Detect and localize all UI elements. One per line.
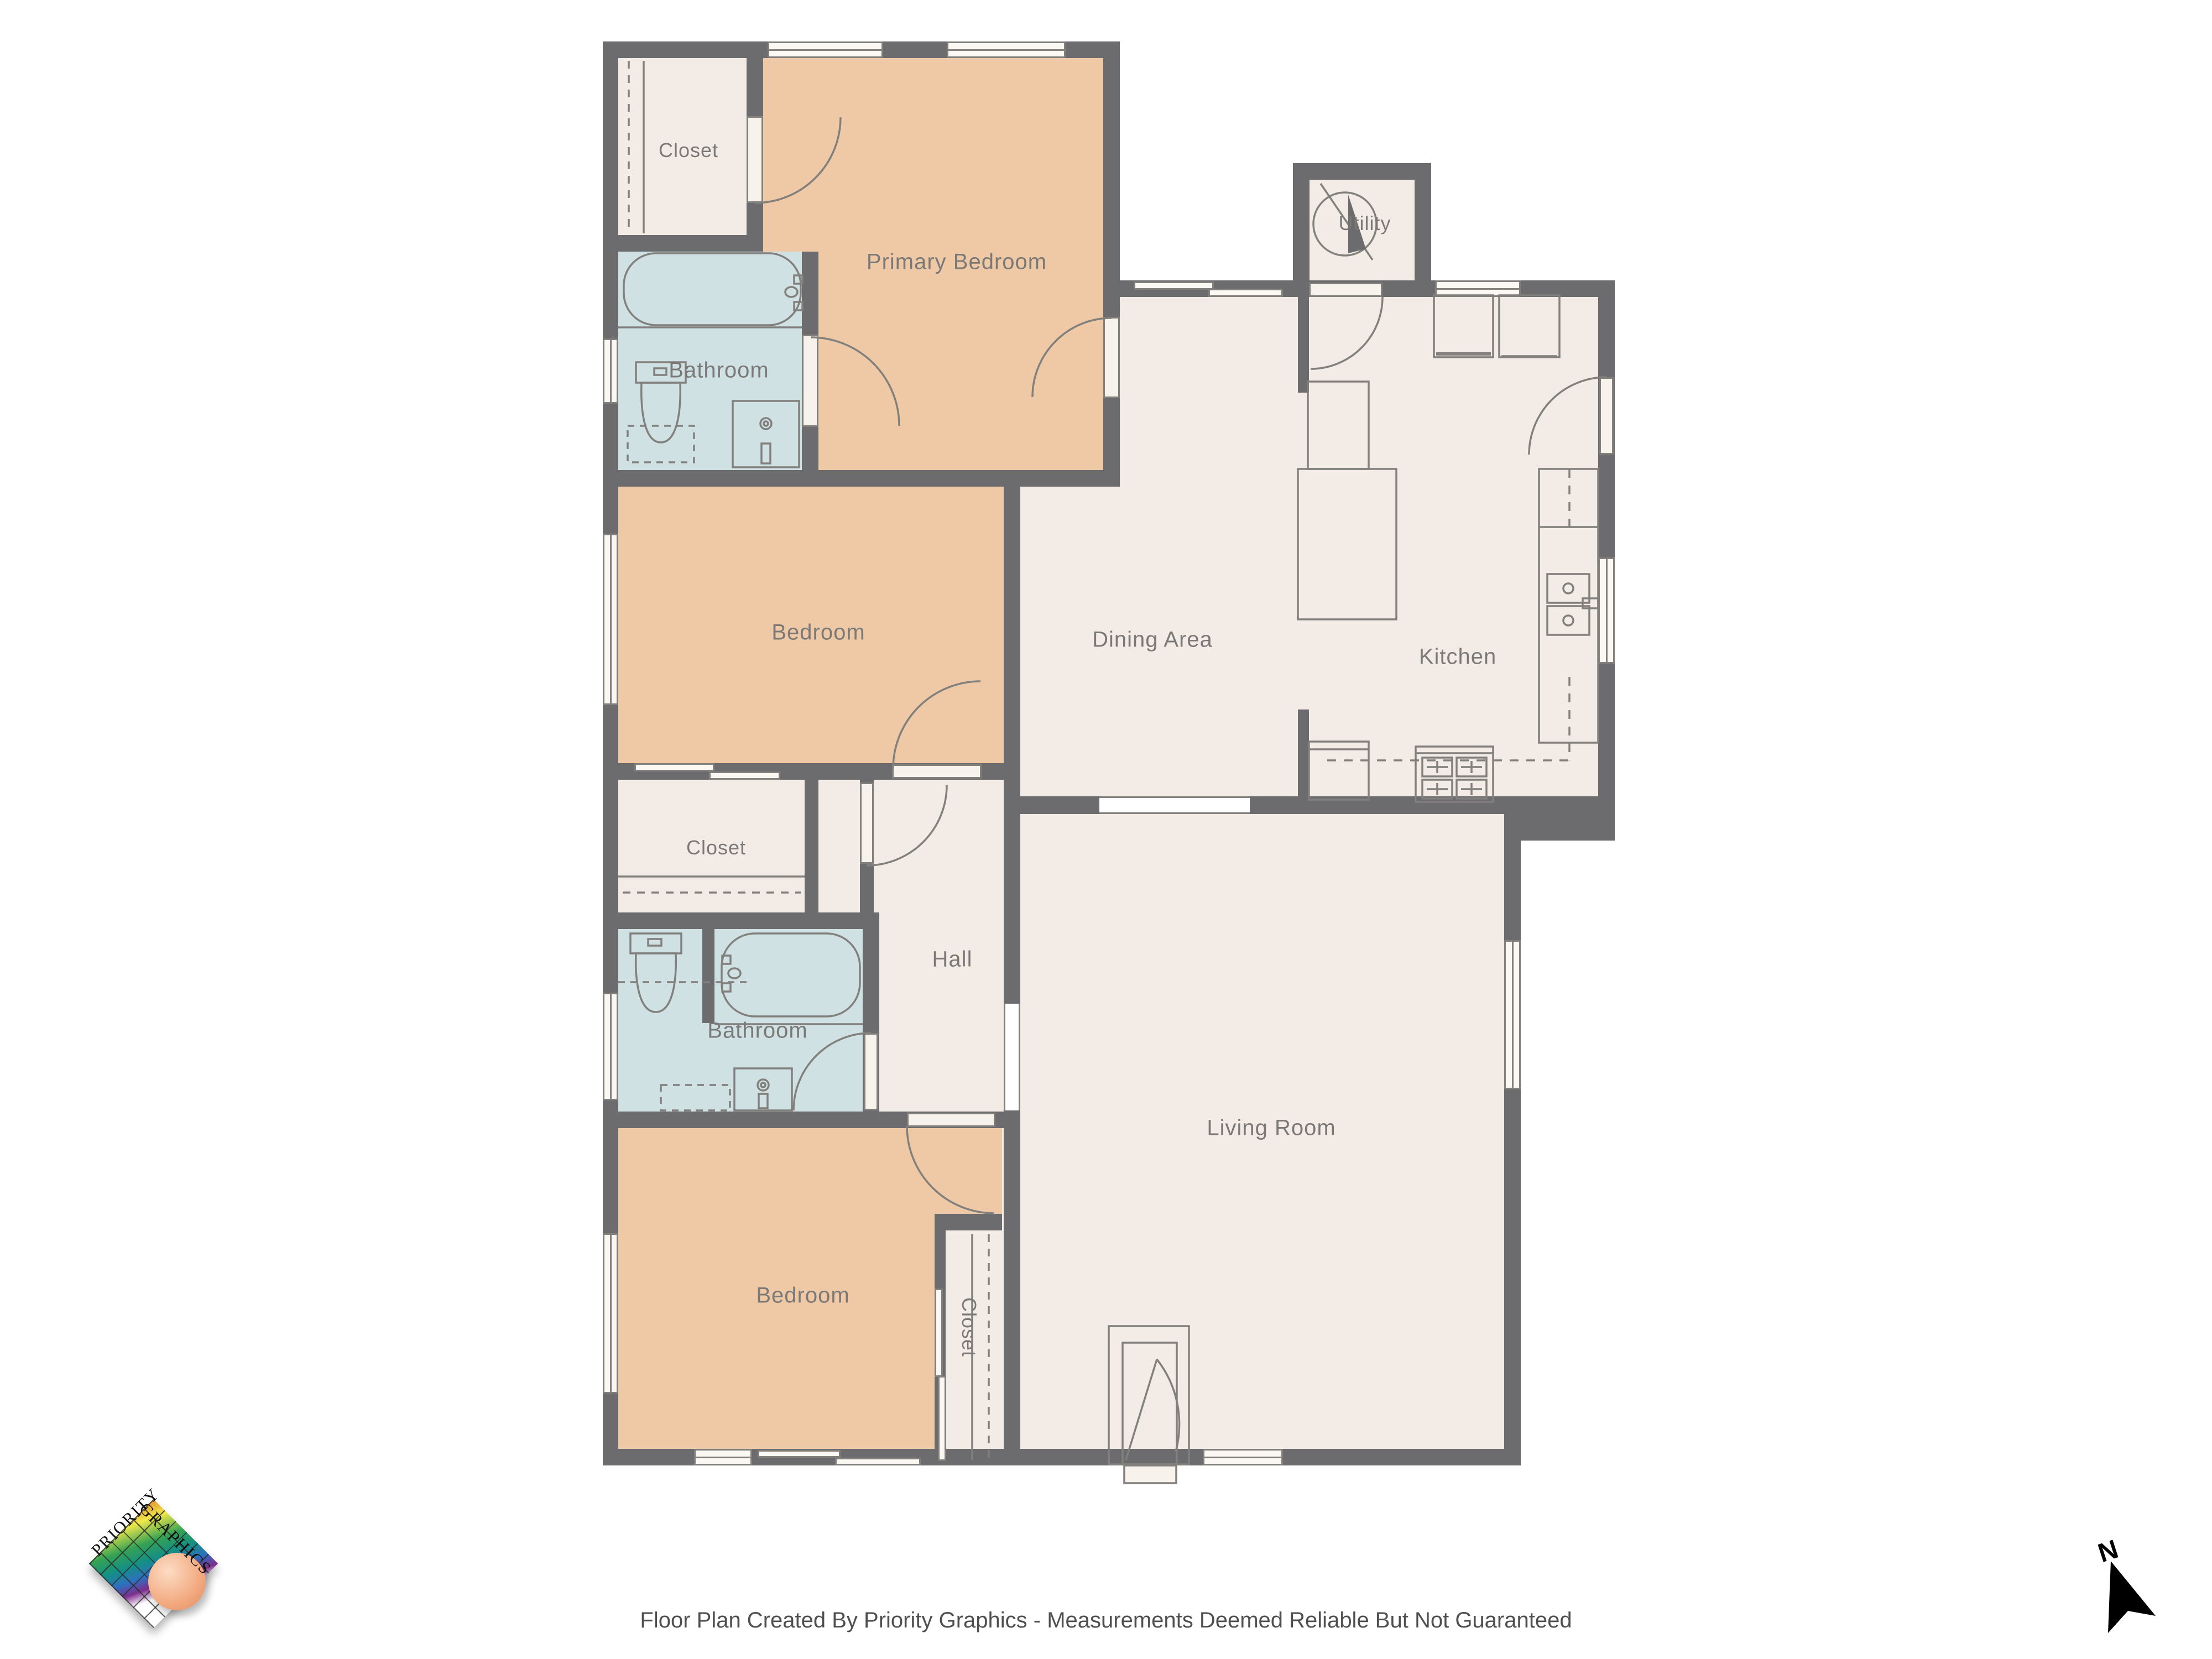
room-label-bathroom-top: Bathroom xyxy=(669,358,769,383)
entry-door-leaf xyxy=(1126,1359,1157,1460)
faucet-spout xyxy=(785,287,797,297)
room-label-dining-area: Dining Area xyxy=(1092,628,1213,653)
shower-pan xyxy=(733,401,799,467)
north-arrow-icon xyxy=(2085,1532,2206,1653)
room-label-primary-bedroom: Primary Bedroom xyxy=(867,250,1047,275)
room-label-hall: Hall xyxy=(932,947,973,972)
shower-fixture xyxy=(759,1094,768,1108)
shower-fixture xyxy=(761,444,770,463)
footer-disclaimer: Floor Plan Created By Priority Graphics … xyxy=(0,1608,2212,1633)
toilet-bowl xyxy=(641,383,680,442)
bathtub xyxy=(722,933,860,1016)
room-label-closet-bottom: Closet xyxy=(957,1297,980,1357)
north-arrow-shape xyxy=(2108,1561,2156,1633)
door-arc xyxy=(867,785,947,865)
kitchen-counter xyxy=(1308,382,1369,469)
faucet-spout xyxy=(728,968,740,978)
stove-burners xyxy=(1422,758,1486,799)
shower-drain xyxy=(761,1083,765,1087)
clearance-dashed xyxy=(628,426,694,462)
toilet-button xyxy=(654,368,666,375)
door-arc xyxy=(755,117,841,203)
shower-drain xyxy=(758,1079,769,1091)
room-label-utility: Utility xyxy=(1339,212,1391,235)
room-label-bathroom-middle: Bathroom xyxy=(707,1019,807,1044)
door-arc xyxy=(907,1126,994,1213)
faucet xyxy=(722,983,731,992)
entry-step xyxy=(1124,1465,1176,1483)
shower-drain xyxy=(764,421,768,426)
room-label-kitchen: Kitchen xyxy=(1419,645,1496,670)
door-arc xyxy=(811,337,899,426)
door-arc xyxy=(1032,318,1112,397)
door-arc xyxy=(1311,297,1383,369)
kitchen-island xyxy=(1298,469,1396,619)
vanity-dashed xyxy=(661,1085,730,1110)
room-label-bedroom-bottom: Bedroom xyxy=(756,1284,849,1308)
sink-basin xyxy=(1547,606,1589,635)
stove xyxy=(1416,747,1493,802)
room-label-closet-top: Closet xyxy=(659,139,718,162)
room-label-bedroom-middle: Bedroom xyxy=(771,620,865,645)
sink-drain xyxy=(1563,615,1573,625)
appliance xyxy=(1499,295,1559,357)
page: { "footer": { "text": "Floor Plan Create… xyxy=(0,0,2212,1659)
room-label-closet-middle: Closet xyxy=(686,836,746,859)
shower-pan xyxy=(734,1068,792,1110)
door-arc xyxy=(794,1033,871,1110)
door-arc xyxy=(893,681,980,769)
bathtub xyxy=(624,253,801,325)
north-arrow: N xyxy=(2085,1532,2206,1653)
room-label-living-room: Living Room xyxy=(1207,1116,1335,1141)
fixtures-layer xyxy=(0,0,2212,1659)
refrigerator xyxy=(1434,295,1493,357)
shower-drain xyxy=(760,418,771,429)
toilet-tank xyxy=(630,933,681,953)
sink-drain xyxy=(1563,583,1573,593)
floor-plan: Closet Primary Bedroom Bathroom Bedroom … xyxy=(0,0,2212,1659)
door-arc xyxy=(1529,377,1606,455)
toilet-button xyxy=(648,939,661,946)
